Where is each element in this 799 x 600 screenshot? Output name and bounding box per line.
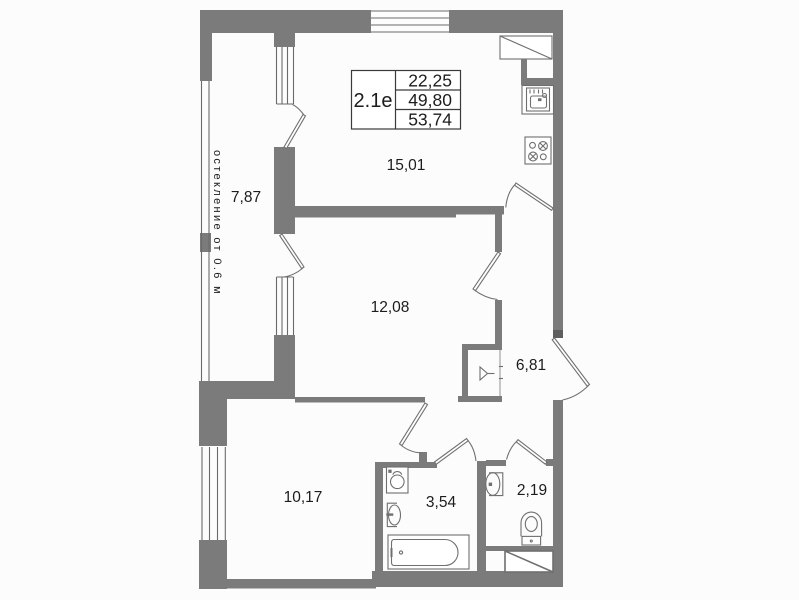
svg-text:остекление от 0.6 м: остекление от 0.6 м [211,150,223,296]
svg-text:53,74: 53,74 [408,110,452,130]
svg-text:10,17: 10,17 [284,489,323,506]
svg-text:2,19: 2,19 [517,482,547,499]
svg-text:3,54: 3,54 [426,494,457,511]
svg-text:2.1е: 2.1е [354,90,393,112]
svg-text:22,25: 22,25 [408,71,452,91]
svg-text:12,08: 12,08 [371,299,410,316]
svg-text:15,01: 15,01 [387,157,426,174]
svg-text:49,80: 49,80 [408,90,452,110]
svg-text:6,81: 6,81 [516,357,546,374]
svg-text:7,87: 7,87 [231,189,261,206]
